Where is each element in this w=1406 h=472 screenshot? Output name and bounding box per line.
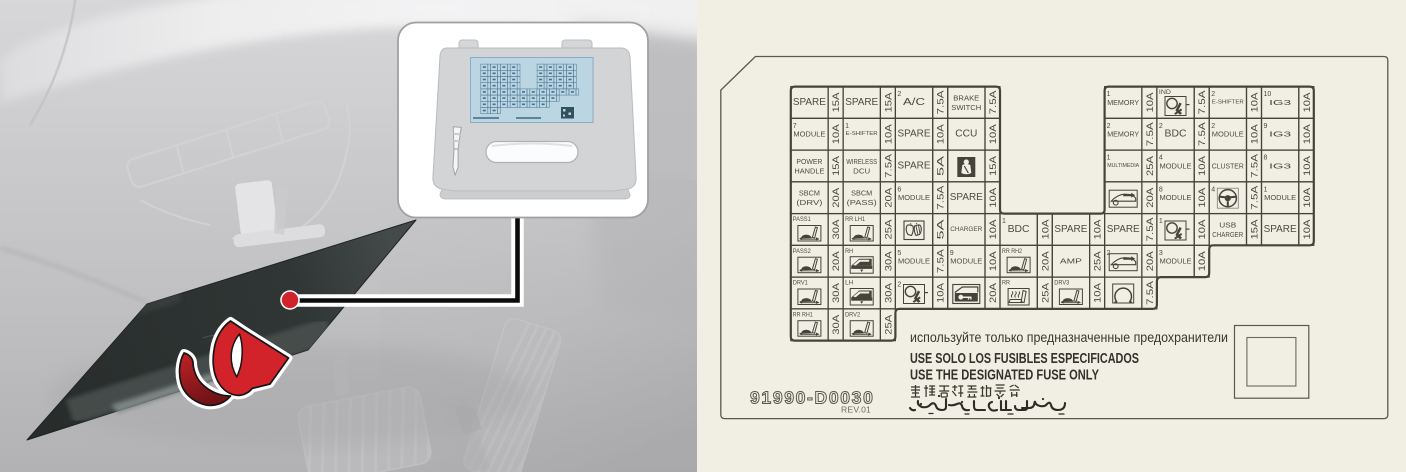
svg-text:MODULE: MODULE <box>1264 193 1296 202</box>
svg-text:25A: 25A <box>1040 282 1050 303</box>
svg-text:1: 1 <box>845 123 849 130</box>
svg-text:7.5A: 7.5A <box>1145 216 1155 241</box>
svg-text:DCU: DCU <box>853 168 870 175</box>
svg-text:SPARE: SPARE <box>1054 224 1087 235</box>
svg-text:10A: 10A <box>988 250 998 271</box>
svg-text:7.5A: 7.5A <box>1250 185 1260 210</box>
svg-text:MODULE: MODULE <box>950 257 982 266</box>
svg-text:20A: 20A <box>988 282 998 303</box>
svg-text:7.5A: 7.5A <box>988 89 998 114</box>
svg-text:8: 8 <box>1264 155 1268 162</box>
svg-text:PASS1: PASS1 <box>793 217 812 223</box>
svg-text:SPARE: SPARE <box>1107 224 1140 235</box>
svg-text:(DRV): (DRV) <box>796 200 822 207</box>
svg-text:CCU: CCU <box>955 129 977 140</box>
svg-text:CLUSTER: CLUSTER <box>1212 162 1244 171</box>
svg-text:7.5A: 7.5A <box>1145 121 1155 146</box>
svg-text:10A: 10A <box>1197 187 1207 208</box>
svg-text:7.5A: 7.5A <box>1250 153 1260 178</box>
svg-text:10A: 10A <box>1302 123 1312 144</box>
svg-text:10A: 10A <box>1197 219 1207 240</box>
svg-text:15A: 15A <box>831 155 841 176</box>
svg-text:IND: IND <box>1159 90 1172 96</box>
svg-text:20A: 20A <box>1145 250 1155 271</box>
svg-text:SBCM: SBCM <box>799 191 820 198</box>
svg-text:DRV1: DRV1 <box>793 281 809 287</box>
svg-text:10A: 10A <box>1093 219 1103 240</box>
svg-text:5A: 5A <box>936 218 946 239</box>
svg-text:RR LH1: RR LH1 <box>845 217 866 223</box>
svg-text:2: 2 <box>1211 91 1215 98</box>
svg-text:HANDLE: HANDLE <box>794 168 824 175</box>
svg-text:1: 1 <box>1002 218 1006 225</box>
svg-text:RR: RR <box>1002 281 1011 287</box>
svg-text:используйте только предназначе: используйте только предназначенные предо… <box>910 329 1228 345</box>
svg-text:USB: USB <box>1219 222 1236 229</box>
svg-text:BDC: BDC <box>1008 224 1030 235</box>
svg-text:9: 9 <box>1264 123 1268 130</box>
svg-text:LH: LH <box>845 281 853 287</box>
svg-text:USE SOLO LOS FUSIBLES ESPECIFI: USE SOLO LOS FUSIBLES ESPECIFICADOS <box>910 351 1139 367</box>
svg-text:MODULE: MODULE <box>1160 257 1192 266</box>
svg-text:4: 4 <box>1211 186 1215 193</box>
svg-text:WIRELESS: WIRELESS <box>846 159 877 166</box>
svg-text:IG3: IG3 <box>1269 98 1291 107</box>
svg-text:10A: 10A <box>1197 250 1207 271</box>
svg-text:25A: 25A <box>883 219 893 240</box>
svg-text:20A: 20A <box>883 187 893 208</box>
svg-text:10A: 10A <box>936 282 946 303</box>
svg-text:10A: 10A <box>1197 155 1207 176</box>
svg-text:RR RH1: RR RH1 <box>793 312 814 318</box>
svg-text:DRV2: DRV2 <box>845 312 861 318</box>
svg-text:20A: 20A <box>1040 250 1050 271</box>
svg-text:MODULE: MODULE <box>898 193 930 202</box>
svg-text:SPARE: SPARE <box>950 192 983 203</box>
svg-text:2: 2 <box>897 282 901 289</box>
svg-text:30A: 30A <box>883 250 893 271</box>
svg-text:10A: 10A <box>1093 282 1103 303</box>
svg-text:REV.01: REV.01 <box>841 405 871 415</box>
svg-text:10A: 10A <box>1145 92 1155 113</box>
svg-text:15A: 15A <box>883 92 893 113</box>
svg-text:USE THE DESIGNATED FUSE ONLY: USE THE DESIGNATED FUSE ONLY <box>910 368 1099 384</box>
svg-text:10A: 10A <box>831 123 841 144</box>
svg-text:5A: 5A <box>936 155 946 176</box>
svg-text:7.5A: 7.5A <box>936 248 946 273</box>
svg-text:10A: 10A <box>988 123 998 144</box>
svg-text:10A: 10A <box>988 187 998 208</box>
svg-text:RR RH2: RR RH2 <box>1002 249 1023 255</box>
svg-text:CHARGER: CHARGER <box>1212 232 1243 239</box>
svg-text:30A: 30A <box>831 219 841 240</box>
svg-text:MEMORY: MEMORY <box>1107 98 1139 107</box>
svg-text:1: 1 <box>1107 155 1111 162</box>
svg-text:15A: 15A <box>988 155 998 176</box>
svg-text:SPARE: SPARE <box>1264 224 1297 235</box>
svg-text:7.5A: 7.5A <box>936 89 946 114</box>
svg-text:7.5A: 7.5A <box>1197 121 1207 146</box>
svg-text:MODULE: MODULE <box>793 130 825 139</box>
svg-text:CHARGER: CHARGER <box>950 226 982 233</box>
svg-text:20A: 20A <box>1145 187 1155 208</box>
svg-text:SPARE: SPARE <box>845 97 878 108</box>
svg-text:7.5A: 7.5A <box>1197 89 1207 114</box>
svg-text:10A: 10A <box>1302 187 1312 208</box>
svg-text:SPARE: SPARE <box>898 129 931 140</box>
svg-text:SPARE: SPARE <box>898 161 931 172</box>
svg-text:25A: 25A <box>1145 155 1155 176</box>
svg-text:SPARE: SPARE <box>793 97 826 108</box>
svg-text:25A: 25A <box>1093 250 1103 271</box>
svg-text:20A: 20A <box>831 250 841 271</box>
svg-text:10A: 10A <box>1302 155 1312 176</box>
svg-text:MODULE: MODULE <box>1160 162 1192 171</box>
svg-text:MEMORY: MEMORY <box>1107 130 1139 139</box>
svg-text:MODULE: MODULE <box>1212 130 1244 139</box>
svg-text:30A: 30A <box>831 314 841 335</box>
svg-text:25A: 25A <box>883 314 893 335</box>
svg-text:SBCM: SBCM <box>851 191 872 198</box>
svg-text:SWITCH: SWITCH <box>951 105 981 112</box>
svg-text:10A: 10A <box>988 219 998 240</box>
svg-text:10A: 10A <box>1302 92 1312 113</box>
svg-text:RH: RH <box>845 249 853 255</box>
svg-text:(PASS): (PASS) <box>847 200 877 207</box>
svg-text:2: 2 <box>897 91 901 98</box>
svg-text:IG3: IG3 <box>1269 162 1291 171</box>
svg-text:MODULE: MODULE <box>1160 193 1192 202</box>
svg-text:10A: 10A <box>883 123 893 144</box>
svg-text:E-SHIFTER: E-SHIFTER <box>1212 100 1244 106</box>
svg-text:PASS2: PASS2 <box>793 249 812 255</box>
svg-text:10A: 10A <box>1250 123 1260 144</box>
svg-text:15A: 15A <box>1250 219 1260 240</box>
svg-text:2: 2 <box>1159 123 1163 130</box>
svg-text:30A: 30A <box>831 282 841 303</box>
svg-text:DRV3: DRV3 <box>1054 281 1070 287</box>
svg-text:7.5A: 7.5A <box>1145 280 1155 305</box>
svg-text:10A: 10A <box>936 123 946 144</box>
svg-text:10A: 10A <box>1250 92 1260 113</box>
svg-text:AMP: AMP <box>1060 257 1082 266</box>
svg-text:7.5A: 7.5A <box>936 185 946 210</box>
svg-text:E-SHIFTER: E-SHIFTER <box>846 131 878 137</box>
svg-text:7.5A: 7.5A <box>883 153 893 178</box>
svg-text:10A: 10A <box>1040 219 1050 240</box>
svg-text:MULTIMEDIA: MULTIMEDIA <box>1107 163 1139 169</box>
svg-text:15A: 15A <box>831 92 841 113</box>
svg-text:1: 1 <box>1159 218 1163 225</box>
svg-text:POWER: POWER <box>796 159 822 166</box>
svg-text:20A: 20A <box>831 187 841 208</box>
svg-text:BDC: BDC <box>1165 129 1187 140</box>
svg-text:BRAKE: BRAKE <box>953 95 979 102</box>
svg-text:10A: 10A <box>1302 219 1312 240</box>
svg-text:A/C: A/C <box>903 97 926 108</box>
svg-text:30A: 30A <box>883 282 893 303</box>
svg-text:MODULE: MODULE <box>898 257 930 266</box>
svg-text:IG3: IG3 <box>1269 130 1291 139</box>
